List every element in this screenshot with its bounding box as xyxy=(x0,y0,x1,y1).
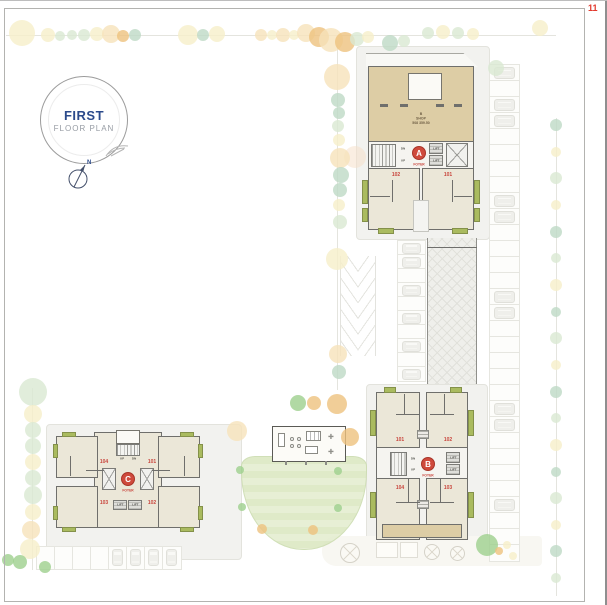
sheet-edge-top xyxy=(0,0,607,1)
page-number: 11 xyxy=(588,3,598,13)
sheet-frame xyxy=(4,8,585,602)
floor-plan-sheet: ✚ ✚ B SHOP 508 359.50 DN UP A FOYER LIFT… xyxy=(0,0,607,605)
